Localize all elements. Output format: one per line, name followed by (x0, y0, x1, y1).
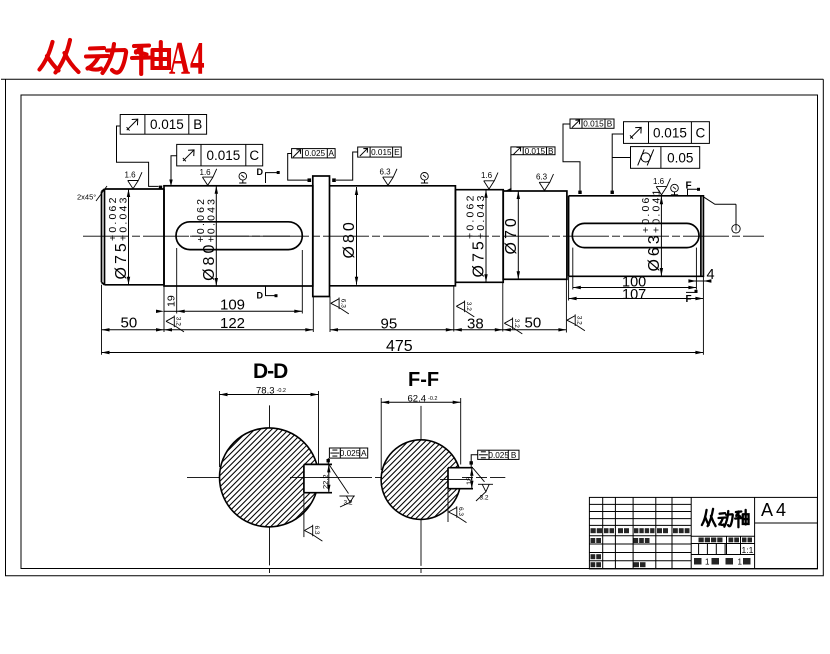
svg-text:A: A (361, 449, 367, 458)
svg-text:0.015: 0.015 (525, 147, 546, 156)
svg-text:6.3: 6.3 (457, 507, 464, 516)
svg-text:3.2: 3.2 (344, 500, 353, 507)
svg-text:19: 19 (166, 295, 178, 307)
svg-text:6.3: 6.3 (339, 299, 346, 308)
svg-text:109: 109 (220, 297, 245, 314)
svg-text:78.3: 78.3 (256, 386, 275, 397)
svg-text:0.015: 0.015 (150, 117, 184, 132)
svg-text:122: 122 (220, 315, 245, 332)
svg-text:C: C (696, 125, 706, 140)
svg-text:D: D (257, 291, 264, 301)
svg-text:0.015: 0.015 (371, 148, 392, 157)
svg-text:Ø75: Ø75 (113, 240, 130, 279)
svg-text:Ø63: Ø63 (646, 232, 663, 271)
svg-text:-0.2: -0.2 (277, 388, 286, 394)
svg-text:D: D (257, 167, 264, 177)
svg-text:3.2: 3.2 (575, 316, 582, 325)
svg-text:Ø70: Ø70 (503, 215, 520, 254)
svg-text:1.6: 1.6 (653, 177, 665, 186)
svg-text:475: 475 (386, 338, 413, 355)
svg-text:18: 18 (464, 477, 473, 485)
svg-text:0.025: 0.025 (305, 149, 326, 158)
svg-text:D-D: D-D (253, 360, 288, 383)
svg-text:F: F (686, 181, 692, 192)
svg-text:E: E (394, 148, 400, 157)
svg-text:1.6: 1.6 (481, 171, 493, 180)
svg-text:B: B (548, 147, 554, 156)
svg-text:50: 50 (525, 315, 542, 332)
svg-text:A4: A4 (761, 500, 789, 520)
svg-text:0.015: 0.015 (207, 148, 241, 163)
svg-text:B: B (511, 451, 517, 460)
svg-text:Ø80: Ø80 (341, 219, 358, 258)
svg-text:62.4: 62.4 (408, 394, 427, 405)
svg-text:0.025: 0.025 (488, 451, 509, 460)
svg-text:1.6: 1.6 (200, 168, 212, 177)
svg-text:6.3: 6.3 (536, 173, 548, 182)
svg-text:3.2: 3.2 (465, 302, 472, 311)
svg-text:+0.043: +0.043 (475, 193, 487, 239)
svg-text:+0.043: +0.043 (118, 195, 130, 241)
svg-text:Ø80: Ø80 (201, 242, 218, 281)
svg-text:107: 107 (622, 287, 646, 303)
svg-text:+0.043: +0.043 (205, 197, 217, 243)
svg-text:1: 1 (705, 558, 710, 567)
svg-text:B: B (193, 117, 202, 132)
svg-text:1.6: 1.6 (125, 171, 137, 180)
svg-text:38: 38 (467, 316, 484, 333)
svg-text:4: 4 (707, 267, 715, 283)
svg-text:6.3: 6.3 (313, 526, 320, 535)
svg-text:95: 95 (381, 316, 398, 333)
svg-text:2x45°: 2x45° (77, 193, 96, 202)
svg-text:3.2: 3.2 (480, 495, 489, 502)
svg-text:A: A (328, 149, 334, 158)
svg-text:3.2: 3.2 (513, 319, 520, 328)
svg-text:22.2: 22.2 (321, 474, 330, 489)
svg-text:B: B (607, 120, 613, 129)
svg-text:6.3: 6.3 (380, 168, 392, 177)
svg-text:1:1: 1:1 (742, 545, 754, 555)
svg-text:Ø75: Ø75 (471, 238, 488, 277)
svg-text:A4: A4 (169, 33, 205, 85)
svg-text:0.025: 0.025 (340, 449, 361, 458)
svg-text:-0.2: -0.2 (428, 396, 437, 402)
svg-text:F: F (686, 294, 692, 305)
svg-text:0.05: 0.05 (667, 150, 693, 165)
svg-text:0.015: 0.015 (583, 120, 604, 129)
svg-text:1: 1 (738, 558, 743, 567)
svg-text:50: 50 (121, 315, 138, 332)
svg-text:C: C (249, 148, 259, 163)
svg-text:F-F: F-F (408, 369, 439, 391)
svg-text:0.015: 0.015 (653, 125, 687, 140)
svg-text:3.2: 3.2 (175, 317, 182, 326)
